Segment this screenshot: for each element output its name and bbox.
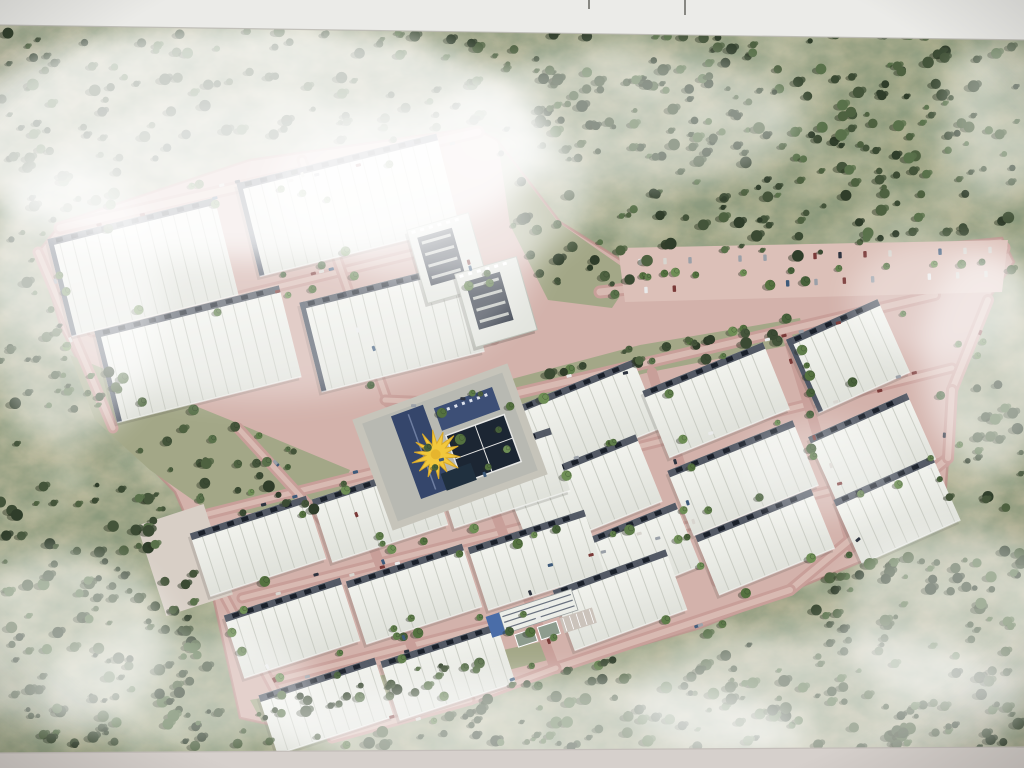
photo-vignette <box>0 0 1024 768</box>
masterplan-rendering <box>0 0 1024 768</box>
photo-of-masterplan <box>0 0 1024 768</box>
